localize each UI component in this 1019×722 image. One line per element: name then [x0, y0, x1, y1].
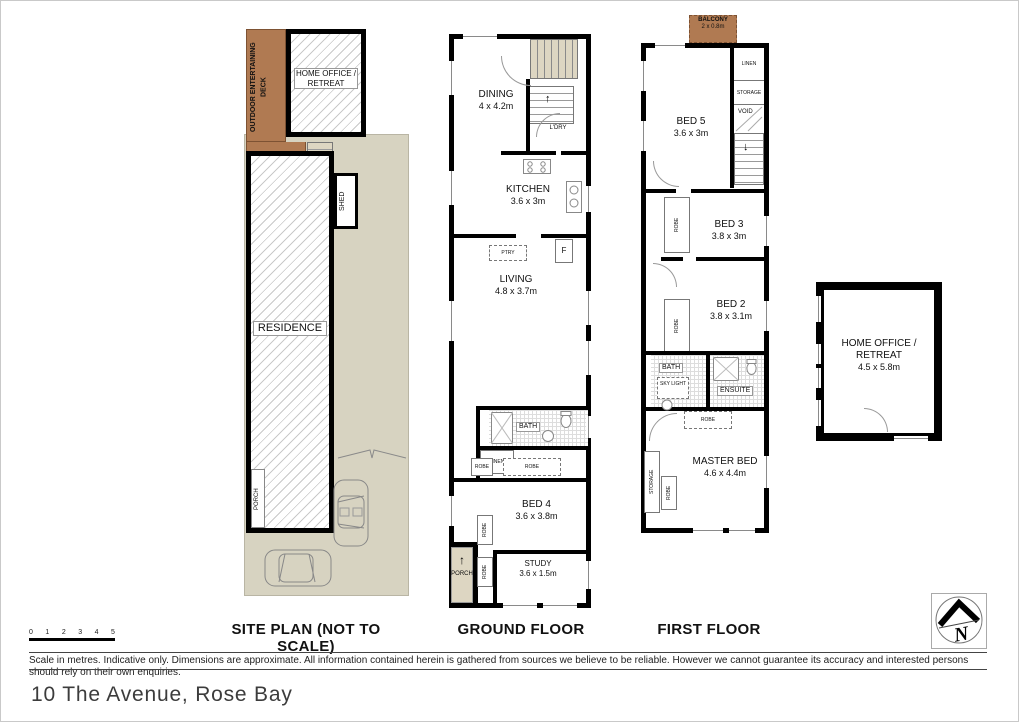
- master-size: 4.6 x 4.4m: [683, 468, 767, 479]
- wall: [493, 550, 497, 604]
- window: [586, 341, 591, 375]
- wall: [501, 151, 556, 155]
- floorplan-sheet: OUTDOOR ENTERTAINING DECK ↓ HOME OFFICE …: [0, 0, 1019, 722]
- residence-label: RESIDENCE: [253, 321, 327, 336]
- balcony-size: 2 x 0.8m: [689, 24, 737, 31]
- ff-robe-4: ROBE: [661, 476, 677, 510]
- storage-label: STORAGE: [649, 462, 655, 502]
- bed3-name: BED 3: [693, 219, 765, 231]
- window: [586, 416, 591, 438]
- robe-label: ROBE: [674, 311, 680, 341]
- shower-icon: [713, 357, 739, 381]
- window: [449, 301, 454, 341]
- window: [586, 186, 591, 212]
- home-office-size: 4.5 x 5.8m: [829, 362, 929, 373]
- study-name: STUDY: [503, 559, 573, 569]
- bed5-name: BED 5: [656, 116, 726, 128]
- ff-robe-1: ROBE: [664, 197, 690, 253]
- ground-floor-plan: ↑ F PTRY: [441, 1, 601, 651]
- window: [894, 436, 928, 441]
- site-plan: OUTDOOR ENTERTAINING DECK ↓ HOME OFFICE …: [1, 1, 421, 651]
- ff-robe-3: ROBE: [684, 411, 732, 429]
- scale-bar: 0 1 2 3 4 5: [29, 629, 115, 645]
- gf-robe-3: ROBE: [477, 515, 493, 545]
- ff-storage-1: STORAGE: [734, 81, 764, 105]
- study-size: 3.6 x 1.5m: [503, 569, 573, 579]
- gf-entry-stairs: [530, 39, 578, 79]
- robe-label: ROBE: [674, 210, 680, 240]
- master-bed-label: MASTER BED 4.6 x 4.4m: [683, 456, 767, 479]
- site-home-office-label: HOME OFFICE / RETREAT: [294, 68, 358, 89]
- wall: [661, 257, 683, 261]
- basin-icon: [661, 399, 673, 411]
- window: [449, 496, 454, 526]
- home-office-label: HOME OFFICE / RETREAT 4.5 x 5.8m: [829, 338, 929, 373]
- basin-icon: [541, 429, 555, 443]
- ldry-label: L'DRY: [541, 125, 575, 132]
- window: [655, 43, 685, 48]
- cooktop-icon: [523, 159, 551, 174]
- bed3-size: 3.8 x 3m: [693, 231, 765, 242]
- robe-label: ROBE: [525, 464, 539, 470]
- bed5-size: 3.6 x 3m: [656, 128, 726, 139]
- wall: [646, 189, 676, 193]
- skylight-label: SKY LIGHT: [659, 381, 687, 387]
- shower-icon: [491, 412, 513, 444]
- property-address: 10 The Avenue, Rose Bay: [31, 682, 293, 707]
- north-arrow: N: [931, 593, 987, 649]
- wall: [454, 234, 516, 238]
- dining-name: DINING: [461, 89, 531, 101]
- robe-label: ROBE: [482, 560, 488, 584]
- scale-tick: 1: [45, 629, 49, 636]
- first-floor-caption: FIRST FLOOR: [619, 621, 799, 638]
- window: [693, 528, 723, 533]
- site-porch-label: PORCH: [254, 479, 261, 519]
- window: [641, 61, 646, 91]
- window: [586, 291, 591, 325]
- window: [816, 344, 821, 364]
- bed3-label: BED 3 3.8 x 3m: [693, 219, 765, 242]
- scale-tick: 5: [111, 629, 115, 636]
- toilet-icon: [745, 359, 758, 376]
- ff-stair-arrow-icon: ↓: [743, 141, 749, 153]
- study-label: STUDY 3.6 x 1.5m: [503, 559, 573, 578]
- ff-void: VOID: [734, 105, 764, 133]
- window: [449, 171, 454, 205]
- wall: [561, 151, 588, 155]
- bed2-name: BED 2: [693, 299, 769, 311]
- home-office-plan: HOME OFFICE / RETREAT 4.5 x 5.8m: [816, 282, 942, 441]
- north-arrow-icon: N: [932, 594, 986, 648]
- window: [816, 400, 821, 426]
- wall: [691, 189, 769, 193]
- balcony-label: BALCONY 2 x 0.8m: [689, 17, 737, 31]
- bed2-label: BED 2 3.8 x 3.1m: [693, 299, 769, 322]
- ensuite-label: ENSUITE: [717, 386, 753, 396]
- scale-tick: 2: [62, 629, 66, 636]
- robe-label: ROBE: [666, 480, 672, 506]
- void-label: VOID: [738, 109, 753, 116]
- balcony-name: BALCONY: [689, 17, 737, 24]
- kitchen-label: KITCHEN 3.6 x 3m: [493, 184, 563, 207]
- ff-stairs: [734, 133, 764, 185]
- sink-icon: [566, 181, 582, 213]
- ff-robe-2: ROBE: [664, 299, 690, 353]
- bed5-label: BED 5 3.6 x 3m: [656, 116, 726, 139]
- car-icon: [263, 548, 333, 588]
- bed2-size: 3.8 x 3.1m: [693, 311, 769, 322]
- driveway-gate-mark: [336, 446, 408, 462]
- window: [463, 34, 497, 39]
- bed4-name: BED 4: [499, 499, 574, 511]
- wall: [541, 234, 588, 238]
- kitchen-name: KITCHEN: [493, 184, 563, 196]
- window: [449, 61, 454, 95]
- car-icon: [332, 478, 370, 548]
- ground-floor-caption: GROUND FLOOR: [431, 621, 611, 638]
- window: [543, 603, 577, 608]
- robe-label: ROBE: [482, 518, 488, 542]
- shed-label: SHED: [339, 183, 347, 219]
- home-office-name: HOME OFFICE / RETREAT: [829, 338, 929, 362]
- fridge: F: [555, 239, 573, 263]
- ff-linen: LINEN: [734, 48, 764, 81]
- bed4-label: BED 4 3.6 x 3.8m: [499, 499, 574, 522]
- divider: [29, 652, 987, 653]
- living-size: 4.8 x 3.7m: [476, 286, 556, 297]
- window: [729, 528, 755, 533]
- north-letter: N: [951, 622, 972, 647]
- first-floor-plan: BALCONY 2 x 0.8m LINEN STORAGE VOID ↓ RO…: [631, 1, 811, 651]
- living-label: LIVING 4.8 x 3.7m: [476, 274, 556, 297]
- storage-label: STORAGE: [737, 90, 761, 96]
- scale-tick: 0: [29, 629, 33, 636]
- toilet-icon: [559, 411, 573, 429]
- gf-porch-label: PORCH: [449, 571, 475, 578]
- ff-storage-2: STORAGE: [644, 451, 660, 513]
- robe-label: ROBE: [475, 464, 489, 470]
- scale-tick: 3: [78, 629, 82, 636]
- pantry-label: PTRY: [501, 250, 514, 256]
- scale-numbers: 0 1 2 3 4 5: [29, 629, 115, 636]
- fridge-label: F: [562, 246, 567, 256]
- ff-bath-label: BATH: [659, 363, 683, 373]
- linen-label: LINEN: [742, 61, 757, 67]
- wall: [696, 257, 769, 261]
- master-name: MASTER BED: [683, 456, 767, 468]
- pantry: PTRY: [489, 245, 527, 261]
- living-name: LIVING: [476, 274, 556, 286]
- gf-robe-2: ROBE: [503, 458, 561, 476]
- window: [503, 603, 537, 608]
- gf-stair-arrow-icon: ↑: [545, 93, 551, 105]
- deck-label: OUTDOOR ENTERTAINING DECK: [249, 37, 283, 137]
- bed4-size: 3.6 x 3.8m: [499, 511, 574, 522]
- disclaimer: Scale in metres. Indicative only. Dimens…: [29, 655, 987, 679]
- wall: [493, 550, 588, 554]
- site-plan-caption: SITE PLAN (NOT TO SCALE): [201, 621, 411, 655]
- window: [816, 368, 821, 388]
- scale-tick: 4: [95, 629, 99, 636]
- dining-label: DINING 4 x 4.2m: [461, 89, 531, 112]
- robe-label: ROBE: [701, 417, 715, 423]
- divider: [29, 669, 987, 670]
- gf-robe-1: ROBE: [471, 458, 493, 476]
- bath-label: BATH: [516, 422, 540, 432]
- scale-bar-line: [29, 638, 115, 641]
- window: [586, 561, 591, 589]
- porch-arrow-icon: ↑: [455, 553, 469, 567]
- window: [816, 296, 821, 322]
- window: [641, 121, 646, 151]
- wall: [454, 478, 588, 482]
- gf-robe-4: ROBE: [477, 557, 493, 587]
- kitchen-size: 3.6 x 3m: [493, 196, 563, 207]
- dining-size: 4 x 4.2m: [461, 101, 531, 112]
